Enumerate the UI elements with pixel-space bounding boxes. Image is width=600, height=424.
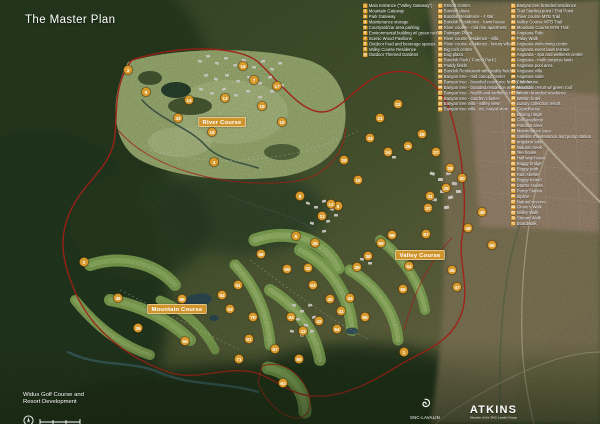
course-label-mountain-course: Mountain Course [147, 304, 207, 314]
map-marker-12: 12 [326, 199, 336, 209]
map-marker-63: 63 [308, 280, 318, 290]
map-marker-8: 8 [295, 191, 305, 201]
map-marker-70: 70 [248, 312, 258, 322]
map-marker-41: 41 [336, 306, 346, 316]
map-marker-65: 65 [360, 312, 370, 322]
map-marker-17: 17 [272, 81, 282, 91]
map-marker-66: 66 [398, 284, 408, 294]
map-marker-51: 51 [233, 280, 243, 290]
map-marker-40: 40 [325, 294, 335, 304]
map-marker-22: 22 [393, 99, 403, 109]
project-name-line2: Resort Development [23, 398, 184, 405]
map-marker-38: 38 [363, 251, 373, 261]
map-marker-61: 61 [244, 334, 254, 344]
map-marker-54: 54 [404, 261, 414, 271]
map-marker-7: 7 [249, 75, 259, 85]
map-marker-52: 52 [217, 290, 227, 300]
scale-bar [39, 417, 81, 424]
map-marker-29: 29 [441, 183, 451, 193]
map-annotations: 1234567891011121314151617181920212223242… [0, 0, 600, 424]
project-name-line1: Widus Golf Course and [23, 391, 184, 398]
map-marker-57: 57 [270, 344, 280, 354]
map-marker-31: 31 [425, 191, 435, 201]
snc-lavalin-logo: SNC-LAVALIN [395, 398, 455, 420]
map-marker-48: 48 [463, 223, 473, 233]
map-marker-60: 60 [294, 354, 304, 364]
map-marker-11: 11 [317, 211, 327, 221]
map-marker-69: 69 [282, 264, 292, 274]
map-marker-30: 30 [457, 173, 467, 183]
map-marker-18: 18 [207, 127, 217, 137]
map-marker-27: 27 [431, 147, 441, 157]
map-marker-36: 36 [113, 293, 123, 303]
map-marker-44: 44 [286, 312, 296, 322]
map-marker-64: 64 [332, 324, 342, 334]
map-marker-71: 71 [234, 354, 244, 364]
logo-block: SNC-LAVALIN ATKINS Member of the SNC-Lav… [395, 398, 593, 420]
map-marker-21: 21 [375, 113, 385, 123]
master-plan-poster: The Master Plan 1Main Entrance ("Valley … [0, 0, 600, 424]
map-marker-58: 58 [387, 230, 397, 240]
map-marker-47: 47 [452, 282, 462, 292]
atkins-logo: ATKINS Member of the SNC-Lavalin Group [470, 404, 593, 420]
map-marker-56: 56 [177, 294, 187, 304]
map-marker-13: 13 [220, 93, 230, 103]
map-marker-37: 37 [423, 203, 433, 213]
map-marker-23: 23 [365, 133, 375, 143]
map-marker-42: 42 [314, 316, 324, 326]
map-marker-55: 55 [180, 336, 190, 346]
map-marker-49: 49 [477, 207, 487, 217]
map-marker-20: 20 [339, 155, 349, 165]
map-marker-26: 26 [417, 129, 427, 139]
course-label-river-course: River Course [198, 117, 246, 127]
map-marker-14: 14 [184, 95, 194, 105]
map-marker-67: 67 [421, 229, 431, 239]
map-marker-50: 50 [487, 240, 497, 250]
map-marker-45: 45 [310, 238, 320, 248]
map-marker-9: 9 [141, 87, 151, 97]
map-marker-32: 32 [303, 263, 313, 273]
map-marker-10: 10 [277, 117, 287, 127]
map-marker-24: 24 [383, 147, 393, 157]
map-marker-33: 33 [173, 113, 183, 123]
map-marker-3: 3 [123, 65, 133, 75]
project-title-block: Widus Golf Course and Resort Development [23, 391, 283, 424]
map-marker-1: 1 [399, 347, 409, 357]
map-marker-68: 68 [256, 249, 266, 259]
map-marker-35: 35 [133, 323, 143, 333]
map-marker-43: 43 [298, 326, 308, 336]
course-label-valley-course: Valley Course [395, 250, 445, 260]
map-marker-62: 62 [278, 378, 288, 388]
map-marker-2: 2 [79, 257, 89, 267]
map-marker-59: 59 [376, 238, 386, 248]
atkins-tagline: Member of the SNC-Lavalin Group [470, 416, 517, 418]
snc-lavalin-wordmark: SNC-LAVALIN [410, 415, 440, 420]
map-marker-15: 15 [257, 101, 267, 111]
atkins-wordmark: ATKINS [470, 404, 517, 416]
map-marker-53: 53 [225, 304, 235, 314]
map-marker-6: 6 [291, 231, 301, 241]
map-marker-16: 16 [238, 61, 248, 71]
snc-lavalin-swirl-icon [419, 398, 431, 410]
map-marker-25: 25 [403, 141, 413, 151]
map-marker-46: 46 [447, 265, 457, 275]
map-marker-34: 34 [345, 293, 355, 303]
map-marker-39: 39 [352, 262, 362, 272]
map-marker-19: 19 [353, 175, 363, 185]
map-marker-4: 4 [209, 157, 219, 167]
north-arrow-icon [23, 415, 34, 424]
map-marker-28: 28 [445, 163, 455, 173]
